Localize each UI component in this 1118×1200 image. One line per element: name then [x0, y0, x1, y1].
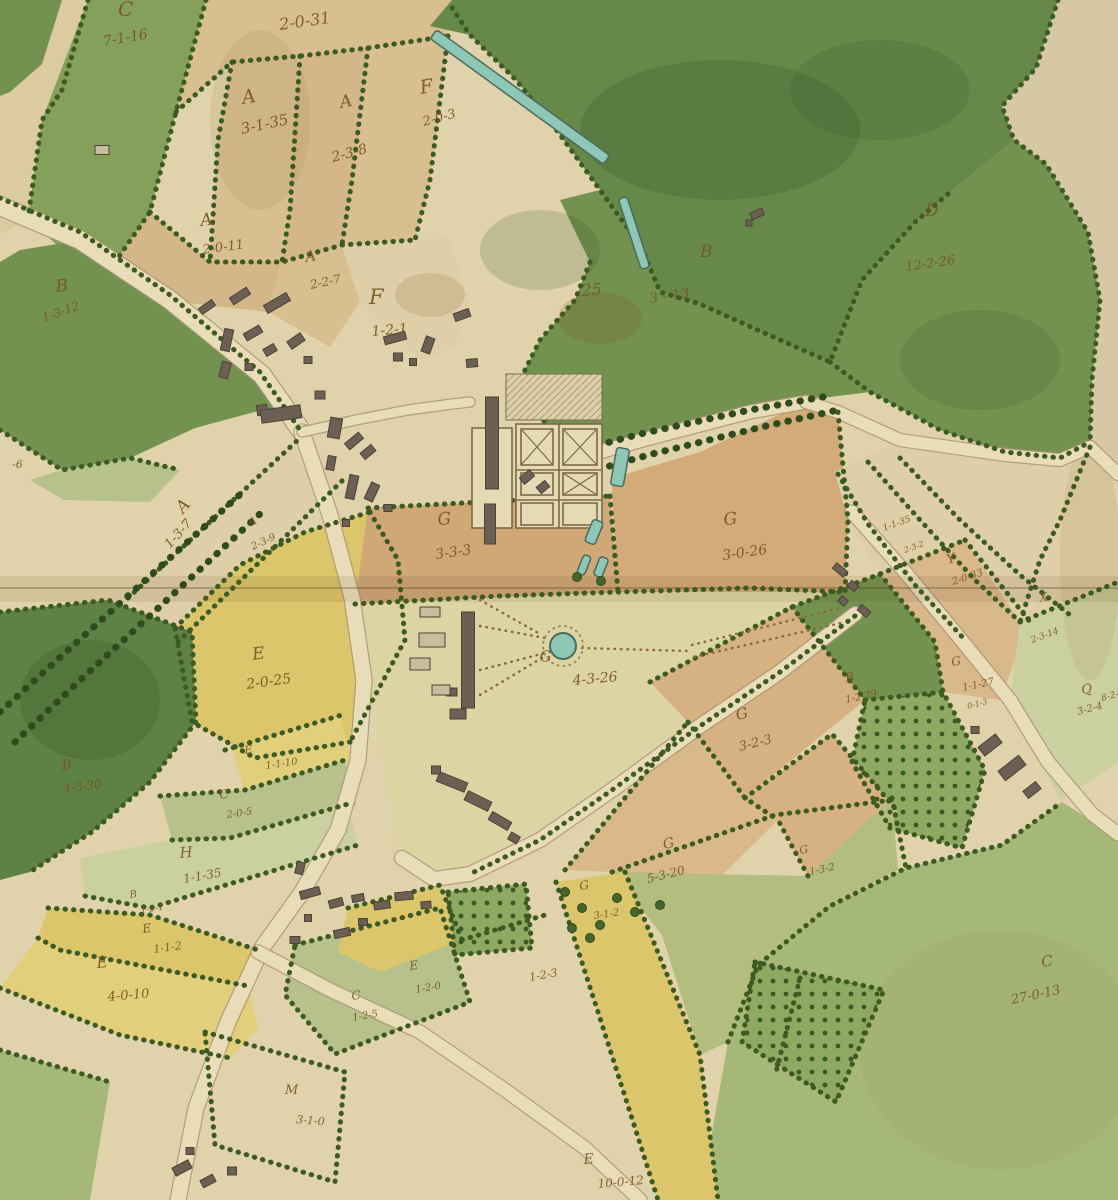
building	[315, 391, 325, 399]
wash-blotch	[1060, 440, 1118, 680]
field-letter-label: B	[128, 889, 138, 901]
estate-map-canvas: C7-1-162-0-31A3-1-35A2-3-8F2-0-3A2-0-11A…	[0, 0, 1118, 1200]
building	[304, 357, 312, 364]
building	[432, 766, 441, 774]
park-tree	[596, 921, 605, 930]
field-letter-label: G	[539, 647, 553, 666]
building	[432, 685, 450, 695]
building	[410, 658, 430, 670]
field-letter-label: F	[368, 285, 385, 309]
field-letter-label: C	[218, 787, 229, 802]
field-letter-label: E	[582, 1151, 595, 1168]
building	[343, 520, 350, 527]
field-letter-label: B	[699, 242, 713, 262]
field-letter-label: H	[178, 843, 195, 862]
field-letter-label: 25	[580, 279, 603, 300]
field-letter-label: G	[437, 509, 452, 530]
field-letter-label: C	[350, 988, 361, 1003]
building	[420, 607, 440, 617]
field-letter-label: G	[723, 509, 738, 530]
building	[305, 915, 312, 922]
park-tree	[578, 904, 587, 913]
building	[466, 359, 478, 368]
wash-blotch	[395, 273, 465, 317]
building	[186, 1148, 194, 1155]
field-letter-label: -6	[12, 458, 23, 471]
field-letter-label: E	[95, 953, 109, 972]
building	[450, 709, 466, 719]
building	[326, 455, 336, 470]
building	[374, 900, 391, 910]
field-letter-label: C	[118, 0, 133, 21]
nursery-hatch	[506, 374, 602, 420]
park-tree	[597, 577, 606, 586]
orchard-2-trees	[448, 884, 532, 955]
building	[290, 937, 300, 944]
building	[351, 894, 364, 903]
building	[359, 919, 368, 926]
building	[394, 353, 403, 361]
field-letter-label: B	[54, 276, 69, 297]
garden-bed	[521, 503, 553, 525]
wash-blotch	[790, 40, 970, 140]
round-pond	[550, 633, 576, 659]
wash-blotch	[558, 292, 642, 344]
field-acreage-label: 3-1-0	[296, 1113, 325, 1128]
building	[485, 504, 496, 544]
field-letter-label: M	[284, 1083, 299, 1098]
field-letter-label: B	[60, 757, 73, 774]
field-letter-label: E	[243, 743, 254, 757]
park-tree	[561, 888, 570, 897]
building	[971, 727, 979, 734]
park-tree	[568, 924, 577, 933]
building	[395, 891, 414, 901]
park-tree	[631, 908, 640, 917]
building	[421, 901, 432, 909]
wash-blotch	[20, 640, 160, 760]
building	[384, 505, 392, 512]
building	[419, 633, 445, 647]
building	[228, 1167, 237, 1175]
building	[245, 364, 253, 371]
field-acreage-label: 1-2-1	[371, 321, 408, 340]
building	[486, 397, 499, 489]
field-letter-label: D	[924, 201, 939, 221]
building	[746, 220, 752, 226]
wash-blotch	[900, 310, 1060, 410]
building	[462, 612, 475, 708]
park-tree	[613, 894, 622, 903]
building	[95, 146, 109, 155]
park-tree	[573, 573, 582, 582]
park-tree	[656, 901, 665, 910]
estate-map: C7-1-162-0-31A3-1-35A2-3-8F2-0-3A2-0-11A…	[0, 0, 1118, 1200]
building	[410, 359, 417, 366]
park-tree	[586, 934, 595, 943]
